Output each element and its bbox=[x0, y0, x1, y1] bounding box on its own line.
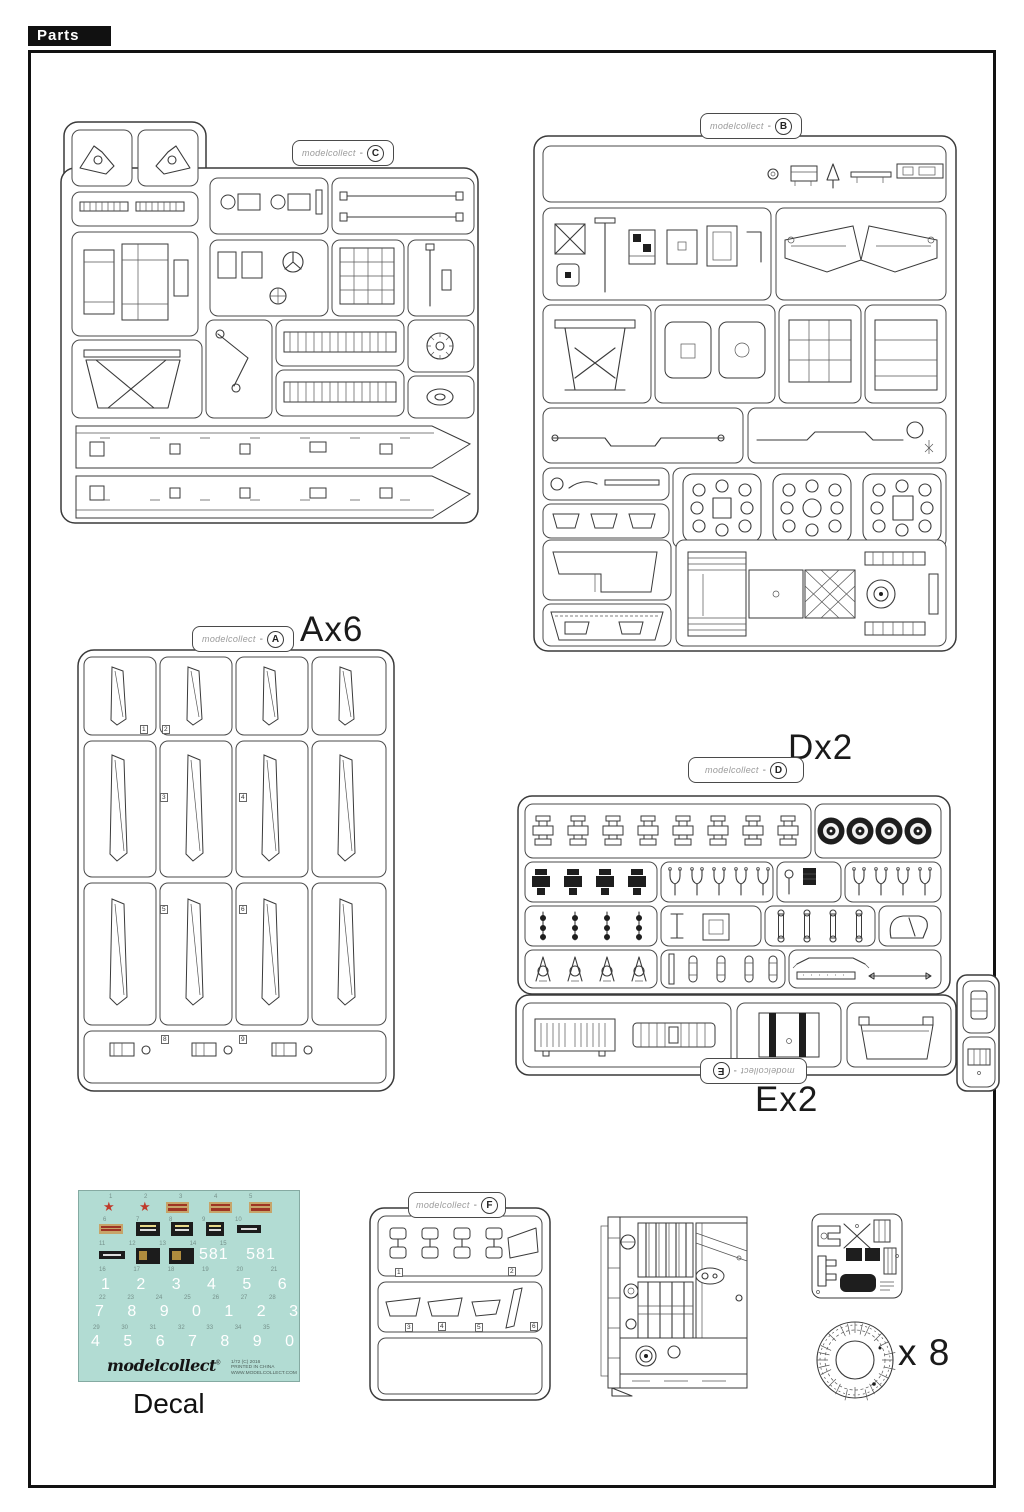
sprue-b-label-tab: modelcollect - B bbox=[700, 113, 802, 139]
part-number: 2 bbox=[508, 1267, 516, 1276]
tactical-plate-decal bbox=[171, 1222, 193, 1236]
license-plate-decal bbox=[99, 1224, 123, 1234]
license-plate-decal bbox=[209, 1202, 232, 1213]
part-number: 8 bbox=[161, 1035, 169, 1044]
tactical-plate-decal bbox=[206, 1222, 224, 1236]
sprue-c bbox=[60, 120, 480, 525]
decal-brand-logo: modelcollect® bbox=[107, 1356, 220, 1376]
license-plate-decal bbox=[249, 1202, 272, 1213]
sprue-c-letter: C bbox=[367, 145, 384, 162]
sprue-e-quantity: Ex2 bbox=[755, 1080, 818, 1120]
brand-logo: modelcollect bbox=[302, 148, 356, 158]
decal-index-row: 22 23 24 25 26 27 28 bbox=[99, 1295, 287, 1301]
part-number: 9 bbox=[239, 1035, 247, 1044]
part-number: 1 bbox=[395, 1268, 403, 1277]
license-plate-decal bbox=[166, 1202, 189, 1213]
tab-separator: - bbox=[734, 1066, 737, 1077]
decal-number-581: 581 581 bbox=[199, 1246, 276, 1264]
decal-number-row: 4 5 6 7 8 9 0 bbox=[91, 1333, 295, 1351]
tactical-plate-decal bbox=[99, 1251, 125, 1259]
tab-separator: - bbox=[768, 121, 771, 132]
tab-separator: - bbox=[260, 634, 263, 645]
sprue-c-drawing bbox=[60, 120, 480, 525]
sprue-d-drawing bbox=[517, 768, 952, 996]
emblem-plate-decal bbox=[169, 1248, 194, 1264]
tab-separator: - bbox=[474, 1200, 477, 1211]
tab-separator: - bbox=[763, 765, 766, 776]
decal-sheet: 1 2 3 4 5 ★ ★ 6 7 8 9 10 11 12 13 14 15 … bbox=[78, 1190, 300, 1382]
sprue-f-drawing bbox=[362, 1190, 562, 1405]
decal-caption: Decal bbox=[133, 1388, 205, 1420]
part-number: 4 bbox=[239, 793, 247, 802]
tactical-plate-decal bbox=[237, 1225, 261, 1233]
part-number: 2 bbox=[162, 725, 170, 734]
decal-index-row: 29 30 31 32 33 34 35 bbox=[93, 1325, 287, 1331]
part-number: 5 bbox=[475, 1323, 483, 1332]
parts-page: { "header": { "title": "Parts" }, "brand… bbox=[0, 0, 1024, 1512]
brand-logo: modelcollect bbox=[710, 121, 764, 131]
sprue-f-label-tab: modelcollect - F bbox=[408, 1192, 506, 1218]
sprue-d bbox=[517, 768, 952, 996]
part-number: 4 bbox=[438, 1322, 446, 1331]
sprue-c-label-tab: modelcollect - C bbox=[292, 140, 394, 166]
decal-index-row: 16 17 18 19 20 21 bbox=[99, 1267, 284, 1273]
part-number: 5 bbox=[160, 905, 168, 914]
sprue-f: 1 2 3 4 5 6 bbox=[362, 1190, 562, 1405]
photo-etch-fret-drawing bbox=[810, 1212, 905, 1302]
sprue-d-label-tab: modelcollect - D bbox=[688, 757, 804, 783]
sprue-f-letter: F bbox=[481, 1197, 498, 1214]
photo-etch-fret bbox=[810, 1212, 905, 1302]
sprue-a-drawing bbox=[76, 643, 396, 1093]
hull-piece bbox=[598, 1198, 768, 1403]
part-number: 1 bbox=[140, 725, 148, 734]
sprue-a-label-tab: modelcollect - A bbox=[192, 626, 294, 652]
sprue-a: 1 2 3 4 5 6 8 9 bbox=[76, 643, 396, 1093]
brand-logo: modelcollect bbox=[416, 1200, 470, 1210]
red-star-decal: ★ bbox=[103, 1200, 115, 1213]
tab-separator: - bbox=[360, 148, 363, 159]
brand-logo: modelcollect bbox=[705, 765, 759, 775]
sprue-d-letter: D bbox=[770, 762, 787, 779]
emblem-plate-decal bbox=[136, 1248, 160, 1264]
sprue-e-letter: E bbox=[713, 1063, 730, 1080]
sprue-b-letter: B bbox=[775, 118, 792, 135]
hull-piece-drawing bbox=[598, 1198, 768, 1403]
part-number: 3 bbox=[160, 793, 168, 802]
decal-number-row: 7 8 9 0 1 2 3 bbox=[95, 1303, 299, 1321]
decal-number-row: 1 2 3 4 5 6 bbox=[101, 1276, 288, 1294]
track-ring-quantity: x 8 bbox=[898, 1332, 950, 1374]
sprue-e-label-tab: modelcollect - E bbox=[700, 1058, 807, 1084]
brand-logo: modelcollect bbox=[741, 1066, 795, 1076]
brand-logo: modelcollect bbox=[202, 634, 256, 644]
red-star-decal: ★ bbox=[139, 1200, 151, 1213]
sprue-b-drawing bbox=[533, 108, 958, 653]
sprue-a-quantity: Ax6 bbox=[300, 610, 363, 650]
part-number: 3 bbox=[405, 1323, 413, 1332]
sprue-a-letter: A bbox=[267, 631, 284, 648]
part-number: 6 bbox=[530, 1322, 538, 1331]
page-title: Parts bbox=[28, 26, 111, 46]
track-link-ring-drawing bbox=[810, 1314, 905, 1409]
part-number: 6 bbox=[239, 905, 247, 914]
decal-index-row: 1 2 3 4 5 bbox=[109, 1194, 274, 1200]
track-link-ring bbox=[810, 1314, 905, 1409]
decal-fine-print: 1/72 (C) 2016 PRINTED IN CHINA WWW.MODEL… bbox=[231, 1360, 297, 1376]
sprue-b bbox=[533, 108, 958, 653]
tactical-plate-decal bbox=[136, 1222, 160, 1236]
